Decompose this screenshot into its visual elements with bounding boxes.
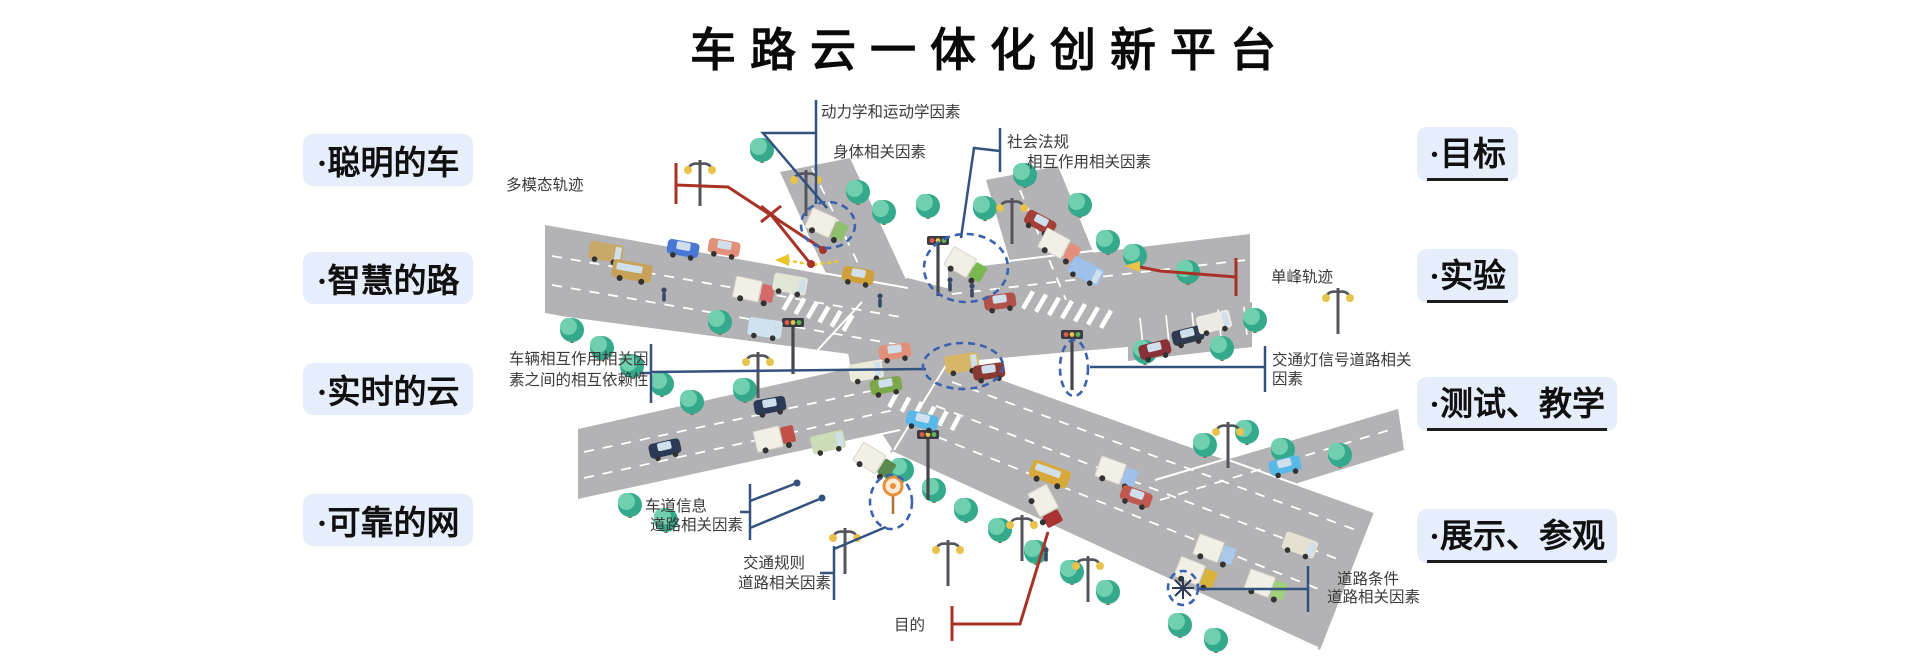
callout-signal-line1: 交通灯信号道路相关	[1272, 351, 1412, 369]
road-condition-star-icon	[1172, 577, 1194, 599]
callout-body-factor: 身体相关因素	[833, 143, 926, 161]
tree-icon	[1210, 336, 1234, 361]
slide: 车路云一体化创新平台 ·聪明的车 ·智慧的路 ·实时的云 ·可靠的网 ·目标 ·…	[0, 0, 1920, 657]
callout-rules-line2: 道路相关因素	[738, 574, 831, 592]
roads	[545, 158, 1404, 650]
callout-lane-line2: 道路相关因素	[650, 516, 743, 534]
callout-interaction-line2: 素之间的相互依赖性	[509, 371, 649, 389]
callout-condition-line2: 道路相关因素	[1327, 588, 1420, 606]
callout-signal-line2: 因素	[1272, 370, 1303, 388]
street-lamp-icon	[1322, 288, 1354, 334]
intersection-illustration: 动力学和运动学因素 身体相关因素 社会法规 相互作用相关因素 多模态轨迹 车辆相…	[0, 0, 1920, 657]
tree-icon	[618, 493, 642, 518]
callout-purpose: 目的	[894, 616, 925, 634]
crossing-sign-icon	[884, 477, 902, 514]
tree-icon	[954, 498, 978, 523]
tree-icon	[1204, 628, 1228, 653]
callout-interaction-line1: 车辆相互作用相关因	[509, 350, 649, 368]
tree-icon	[560, 318, 584, 343]
callout-lane-line1: 车道信息	[645, 497, 707, 515]
callout-condition-line1: 道路条件	[1337, 570, 1399, 588]
callout-social-line2: 相互作用相关因素	[1027, 153, 1151, 171]
tree-icon	[1096, 580, 1120, 605]
street-lamp-icon	[932, 540, 964, 586]
tree-icon	[1168, 613, 1192, 638]
tree-icon	[973, 196, 997, 221]
tree-icon	[650, 372, 674, 397]
callout-multimodal: 多模态轨迹	[506, 176, 584, 194]
callout-rules-line1: 交通规则	[743, 554, 805, 572]
tree-icon	[1060, 560, 1084, 585]
callout-social-line1: 社会法规	[1007, 133, 1069, 151]
tree-icon	[922, 478, 946, 503]
street-lamp-icon	[684, 160, 716, 206]
tree-icon	[916, 194, 940, 219]
callout-unimodal: 单峰轨迹	[1271, 268, 1333, 286]
callout-dynamics: 动力学和运动学因素	[821, 103, 961, 121]
